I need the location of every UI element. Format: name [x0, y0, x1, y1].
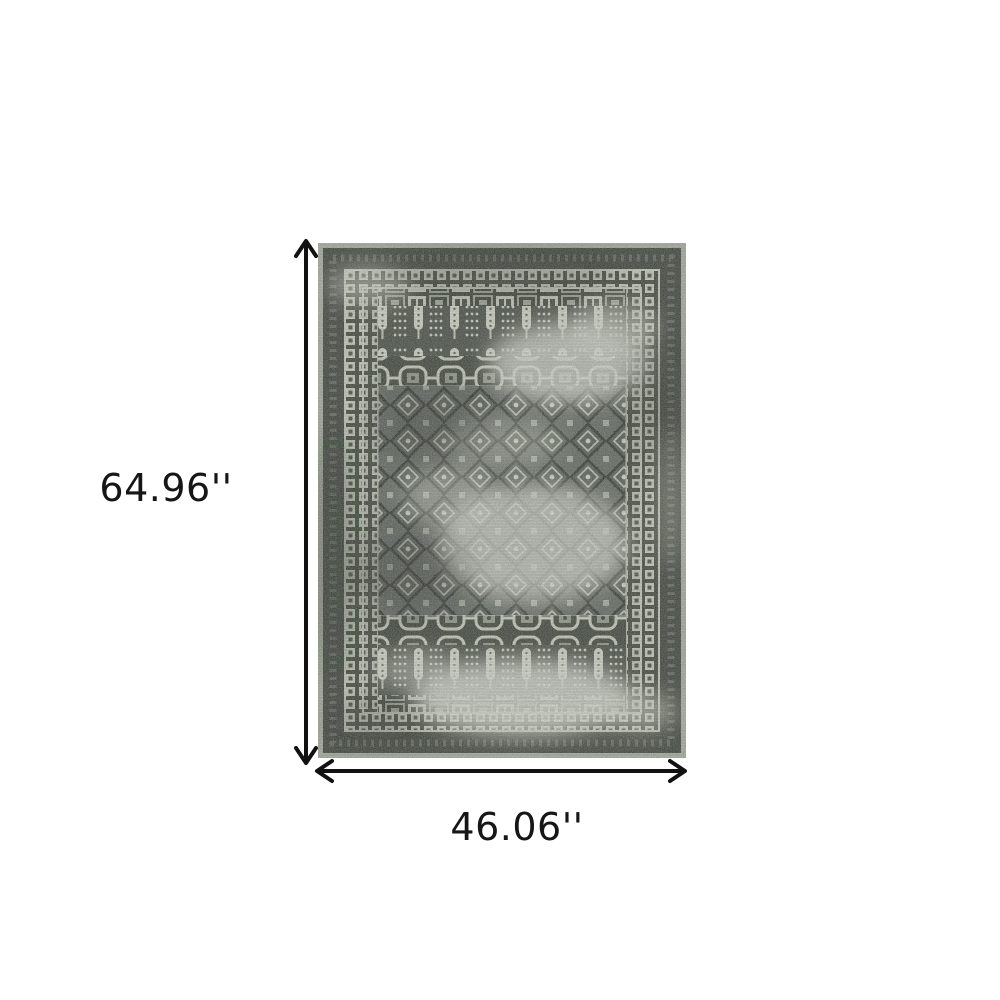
- height-dimension-label: 64.96'': [60, 466, 272, 510]
- width-dimension-label: 46.06'': [407, 805, 627, 849]
- product-dimension-image: 64.96'' 46.06'': [0, 0, 1000, 1000]
- height-dimension-arrow: [296, 241, 316, 763]
- rug-illustration: [318, 243, 686, 758]
- width-dimension-arrow: [317, 761, 685, 781]
- rug-image: [318, 243, 686, 758]
